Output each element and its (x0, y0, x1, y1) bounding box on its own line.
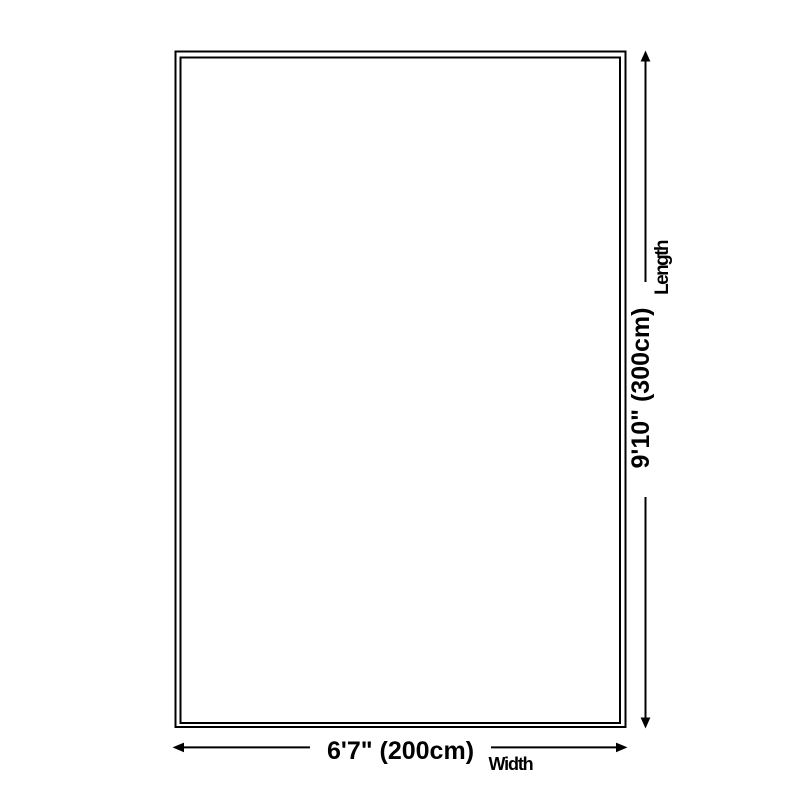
svg-text:6'7" (200cm): 6'7" (200cm) (327, 737, 474, 765)
svg-text:Width: Width (488, 754, 532, 774)
svg-text:Length: Length (652, 240, 673, 295)
svg-text:9'10" (300cm): 9'10" (300cm) (627, 308, 655, 469)
